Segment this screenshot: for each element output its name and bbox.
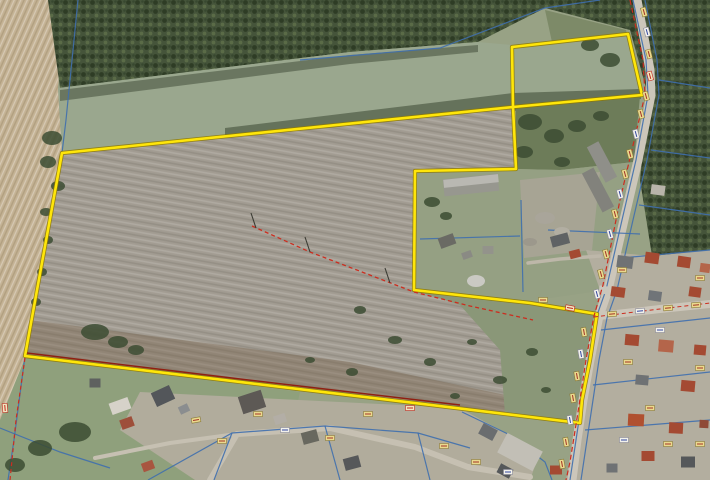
parcel-number-label-42 [696, 366, 705, 371]
label-text-glyph [693, 305, 699, 306]
tree-clump-19 [526, 348, 538, 356]
building-19 [644, 252, 659, 265]
building-28 [694, 344, 707, 355]
tree-clump-23 [424, 197, 440, 207]
building-22 [610, 286, 625, 298]
tree-clump-25 [518, 114, 542, 130]
aerial-map[interactable] [0, 0, 710, 480]
building-34 [642, 451, 655, 461]
tree-clump-4 [28, 440, 52, 456]
tree-clump-20 [541, 387, 551, 393]
tree-clump-21 [346, 368, 358, 376]
parcel-number-label-32 [326, 436, 335, 441]
parcel-number-label-43 [646, 406, 655, 411]
tree-clump-1 [108, 336, 128, 348]
parcel-number-label-29 [218, 439, 227, 444]
tree-clump-22 [305, 357, 315, 363]
parcel-number-label-26 [663, 305, 672, 311]
ground-patch-3 [523, 238, 537, 246]
parcel-number-label-44 [620, 438, 629, 443]
building-26 [625, 334, 640, 346]
building-20 [677, 256, 691, 269]
tree-clump-5 [5, 458, 25, 472]
tree-clump-16 [467, 339, 477, 345]
building-24 [688, 286, 701, 298]
parcel-number-label-30 [254, 412, 263, 417]
tree-clump-2 [128, 345, 144, 355]
tree-clump-27 [568, 120, 586, 132]
building-7 [483, 246, 494, 254]
landcover-layer [0, 0, 710, 480]
parcel-number-label-47 [2, 403, 8, 412]
building-31 [628, 414, 645, 427]
parcel-number-label-46 [696, 442, 705, 447]
building-27 [658, 339, 674, 352]
parcel-number-label-37 [504, 470, 513, 475]
building-30 [681, 380, 696, 392]
building-23 [648, 290, 662, 302]
excluded-trees-east [516, 96, 640, 170]
parcel-number-label-24 [607, 311, 616, 317]
tree-clump-3 [59, 422, 91, 442]
tree-clump-29 [515, 146, 533, 158]
building-32 [669, 422, 684, 434]
tree-clump-30 [554, 157, 570, 167]
building-4 [650, 184, 665, 196]
label-text-glyph [665, 308, 671, 309]
tree-clump-7 [40, 156, 56, 168]
label-text-glyph [5, 405, 6, 411]
building-35 [681, 457, 695, 468]
parcel-number-label-38 [618, 268, 627, 273]
parcel-number-label-33 [364, 412, 373, 417]
parcel-number-label-35 [440, 444, 449, 449]
tree-clump-18 [450, 393, 460, 399]
tree-clump-28 [593, 111, 609, 121]
tree-clump-31 [600, 53, 620, 67]
ground-patch-1 [535, 212, 555, 224]
parcel-number-label-25 [635, 308, 644, 314]
map-viewport[interactable] [0, 0, 710, 480]
tree-clump-17 [493, 376, 507, 384]
building-36 [607, 464, 618, 473]
tree-clump-15 [424, 358, 436, 366]
parcel-number-label-34 [406, 406, 415, 411]
parcel-number-label-16 [539, 298, 548, 303]
label-text-glyph [637, 311, 643, 312]
tree-clump-13 [354, 306, 366, 314]
parcel-number-label-27 [691, 302, 700, 308]
building-15 [90, 379, 101, 388]
building-18 [616, 255, 634, 269]
parcel-number-label-40 [656, 328, 665, 333]
building-29 [635, 374, 649, 385]
tree-clump-24 [440, 212, 452, 220]
building-21 [699, 263, 710, 273]
parcel-number-label-31 [281, 428, 290, 433]
ground-patch-0 [467, 275, 485, 287]
tree-clump-14 [388, 336, 402, 344]
tree-clump-0 [81, 324, 109, 340]
parcel-number-label-41 [624, 360, 633, 365]
parcel-number-label-45 [664, 442, 673, 447]
tree-clump-26 [544, 129, 564, 143]
parcel-number-label-39 [696, 276, 705, 281]
parcel-number-label-36 [472, 460, 481, 465]
building-33 [699, 420, 708, 428]
tree-clump-6 [42, 131, 62, 145]
label-text-glyph [609, 314, 615, 315]
